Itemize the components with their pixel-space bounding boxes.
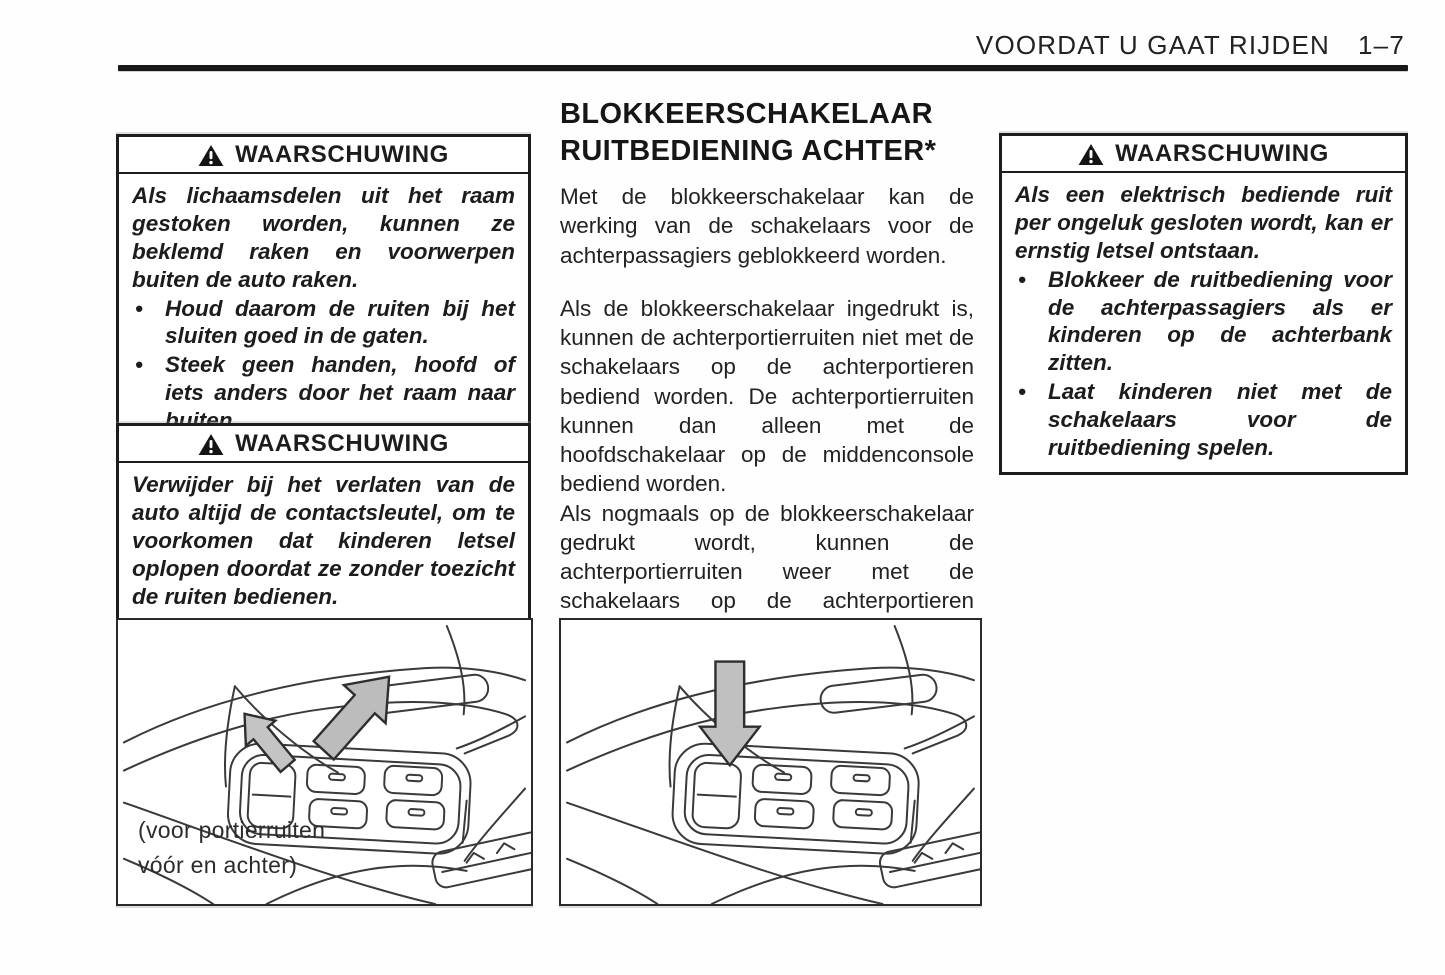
bullet-marker (1015, 266, 1048, 378)
warning-title-bar: WAARSCHUWING (1002, 136, 1405, 173)
warning-bullet: Houd daarom de ruiten bij het sluiten go… (132, 295, 515, 351)
header-rule (118, 65, 1408, 71)
warning-icon (198, 433, 224, 456)
header-section-title: VOORDAT U GAAT RIJDEN (976, 30, 1330, 61)
figure-caption-line2: vóór en achter) (138, 848, 325, 883)
header-page-number: 1–7 (1358, 30, 1405, 61)
body-paragraph: Met de blokkeerschakelaar kan de werking… (560, 182, 974, 270)
console-line-drawing (561, 620, 980, 904)
warning-body: Verwijder bij het verlaten van de auto a… (119, 463, 528, 620)
bullet-marker (132, 295, 165, 351)
body-paragraph: Als de blokkeerschakelaar ingedrukt is, … (560, 294, 974, 499)
warning-title-text: WAARSCHUWING (235, 430, 449, 458)
section-heading: BLOKKEERSCHAKELAAR RUITBEDIENING ACHTER* (560, 96, 974, 170)
warning-bullet: Blokkeer de ruitbediening voor de achter… (1015, 266, 1392, 378)
page-header: VOORDAT U GAAT RIJDEN 1–7 (976, 30, 1405, 61)
warning-title-text: WAARSCHUWING (1115, 140, 1329, 168)
door-pull (878, 827, 980, 889)
warning-title-bar: WAARSCHUWING (119, 137, 528, 174)
warning-bullet: Laat kinderen niet met de schakelaars vo… (1015, 378, 1392, 462)
figure-lock-switch (559, 618, 982, 906)
figure-caption: (voor portierruiten vóór en achter) (138, 813, 325, 882)
manual-page: VOORDAT U GAAT RIJDEN 1–7 WAARSCHUWING A… (0, 0, 1445, 975)
warning-icon (1078, 143, 1104, 166)
section-heading-line2: RUITBEDIENING ACHTER* (560, 133, 974, 170)
press-down-arrow-icon (700, 662, 760, 766)
warning-intro-text: Als lichaamsdelen uit het raam gestoken … (132, 182, 515, 294)
warning-title-text: WAARSCHUWING (235, 141, 449, 169)
warning-intro-text: Als een elektrisch bediende ruit per ong… (1015, 181, 1392, 265)
warning-body: Als een elektrisch bediende ruit per ong… (1002, 173, 1405, 472)
bullet-text: Houd daarom de ruiten bij het sluiten go… (165, 295, 515, 351)
switch-panel (671, 742, 920, 855)
bullet-text: Blokkeer de ruitbediening voor de achter… (1048, 266, 1392, 378)
section-lock-switch: BLOKKEERSCHAKELAAR RUITBEDIENING ACHTER*… (560, 96, 974, 645)
warning-body: Als lichaamsdelen uit het raam gestoken … (119, 174, 528, 445)
warning-title-bar: WAARSCHUWING (119, 426, 528, 463)
warning-box-ignition-key: WAARSCHUWING Verwijder bij het verlaten … (116, 423, 531, 623)
bullet-text: Laat kinderen niet met de schakelaars vo… (1048, 378, 1392, 462)
bullet-marker (1015, 378, 1048, 462)
figure-window-switches: (voor portierruiten vóór en achter) (116, 618, 533, 906)
warning-icon (198, 144, 224, 167)
figure-caption-line1: (voor portierruiten (138, 813, 325, 848)
door-pull (430, 827, 531, 889)
section-heading-line1: BLOKKEERSCHAKELAAR (560, 96, 974, 133)
warning-box-electric-window: WAARSCHUWING Als een elektrisch bediende… (999, 133, 1408, 475)
warning-box-window-pinch: WAARSCHUWING Als lichaamsdelen uit het r… (116, 134, 531, 448)
warning-body-text: Verwijder bij het verlaten van de auto a… (132, 471, 515, 610)
